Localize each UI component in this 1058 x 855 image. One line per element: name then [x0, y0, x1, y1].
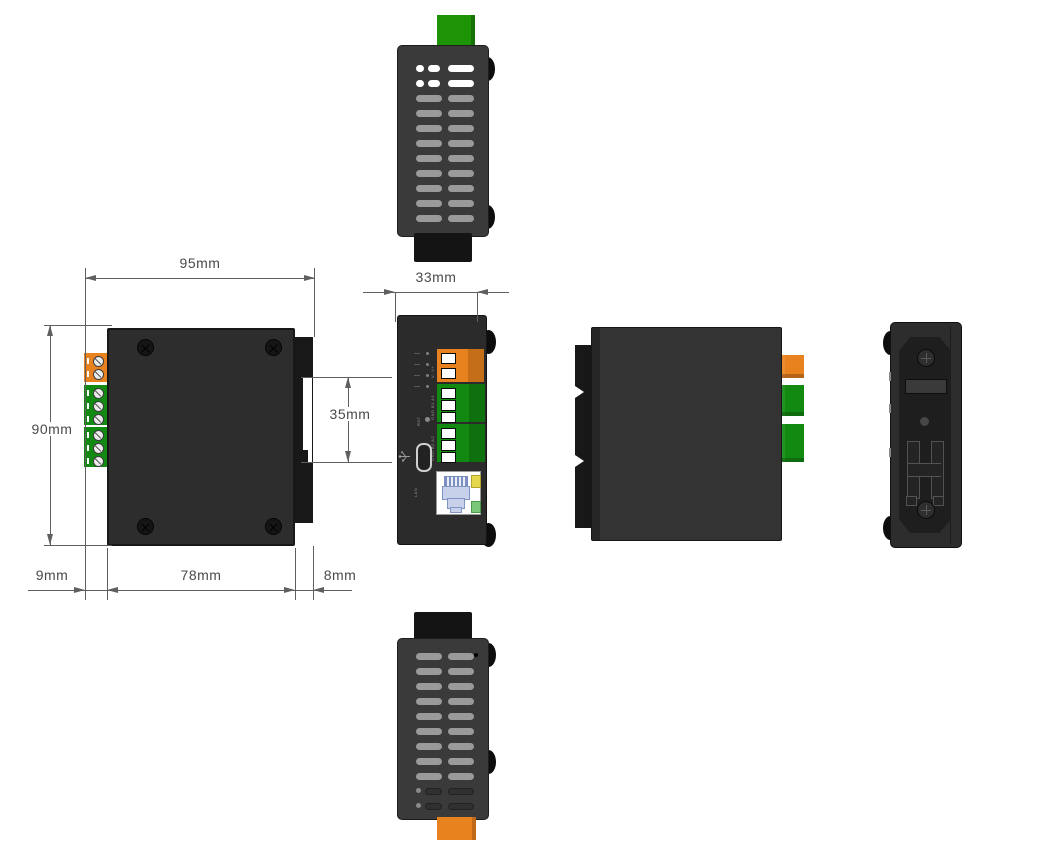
vent-dot	[416, 803, 421, 808]
connector-opening	[441, 388, 456, 399]
vent-slot	[448, 653, 474, 660]
drawing-canvas: V- V+ GND B1 A1 GND B2 A2 RST LAN	[0, 0, 1058, 855]
link-led-yellow	[471, 475, 481, 488]
connector-opening	[441, 452, 456, 463]
vent-slot	[448, 743, 474, 750]
connector-opening	[441, 440, 456, 451]
terminal-wire-slot	[87, 432, 89, 438]
power-connector	[437, 349, 484, 382]
connector-opening	[441, 353, 456, 364]
din-clip-bar	[575, 345, 592, 528]
terminal-cell	[84, 428, 107, 441]
vent-slot	[416, 668, 442, 675]
vent-slot	[448, 155, 474, 162]
terminal-wire-slot	[87, 445, 89, 451]
extension-line	[44, 545, 112, 546]
status-led-label-mark	[414, 364, 420, 365]
mount-slot	[905, 379, 947, 394]
terminal-wire-slot	[87, 403, 89, 409]
status-led-label-mark	[414, 353, 420, 354]
dim-flange-depth: 8mm	[318, 568, 362, 582]
terminal-screw	[93, 456, 104, 467]
power-terminal-label: V- V+	[430, 366, 435, 378]
extension-line	[395, 292, 396, 322]
vent-slot	[416, 215, 442, 222]
vent-slot	[416, 140, 442, 147]
side-serial1-connector	[782, 385, 804, 416]
case-screw	[137, 518, 154, 535]
vent-slot	[416, 728, 442, 735]
link-led-green	[471, 501, 481, 513]
vent-slot	[448, 713, 474, 720]
rj45-port	[436, 471, 481, 515]
terminal-wire-slot	[87, 358, 89, 364]
vent-slot	[448, 80, 474, 87]
vent-slot	[416, 95, 442, 102]
vent-slot	[448, 803, 474, 810]
vent-slot	[416, 155, 442, 162]
terminal-screw	[93, 356, 104, 367]
terminal-wire-slot	[87, 390, 89, 396]
edge-tick	[889, 448, 891, 457]
connector-opening	[441, 368, 456, 379]
terminal-cell	[84, 441, 107, 454]
status-led-label-mark	[414, 375, 420, 376]
dim-rail-slot-height: 35mm	[324, 407, 376, 421]
terminal-wire-slot	[87, 458, 89, 464]
side-serial2-connector	[782, 424, 804, 462]
reset-button	[425, 417, 430, 422]
side-power-connector	[782, 355, 804, 378]
dim-arrow	[345, 377, 351, 388]
dim-arrow	[384, 289, 395, 295]
status-led	[426, 385, 429, 388]
top-view-end-block	[414, 233, 472, 262]
terminal-screw	[93, 401, 104, 412]
dim-arrow	[477, 289, 488, 295]
vent-slot	[448, 758, 474, 765]
dimension-line	[85, 278, 315, 279]
vent-slot	[448, 125, 474, 132]
terminal-cell	[84, 399, 107, 412]
lan-label: LAN	[413, 488, 418, 497]
vent-slot	[416, 773, 442, 780]
terminal-screw	[93, 443, 104, 454]
side-view-body	[591, 327, 782, 541]
mount-screw-bottom	[917, 501, 935, 519]
status-led	[426, 374, 429, 377]
vent-slot	[448, 728, 474, 735]
status-led	[426, 363, 429, 366]
status-led-label-mark	[414, 386, 420, 387]
connector-opening	[441, 412, 456, 423]
terminal-cell	[84, 412, 107, 425]
serial2-terminal-block	[84, 427, 107, 467]
edge-tick	[889, 372, 891, 381]
vent-slot	[416, 110, 442, 117]
vent-slot	[448, 668, 474, 675]
vent-slot	[448, 110, 474, 117]
mount-screw-top	[917, 349, 935, 367]
vent-slot	[416, 743, 442, 750]
terminal-cell	[84, 454, 107, 467]
vent-slot	[416, 80, 424, 87]
vent-slot	[448, 65, 474, 72]
vent-slot	[448, 95, 474, 102]
bottom-orange-connector	[437, 817, 476, 840]
vent-slot	[416, 65, 424, 72]
dim-arrow	[345, 451, 351, 462]
terminal-screw	[93, 430, 104, 441]
vent-slot	[448, 170, 474, 177]
front-view-body	[107, 328, 295, 546]
vent-slot	[448, 200, 474, 207]
vent-slot	[448, 788, 474, 795]
terminal-wire-slot	[87, 371, 89, 377]
dim-overall-width: 95mm	[85, 256, 315, 270]
dim-arrow	[85, 275, 96, 281]
serial2-connector	[437, 424, 485, 462]
serial1-connector	[437, 384, 485, 422]
extension-line	[301, 462, 392, 463]
terminal-cell	[84, 367, 107, 380]
din-clip-foot	[906, 496, 917, 506]
vent-slot	[416, 683, 442, 690]
vent-slot	[416, 653, 442, 660]
vent-dot	[416, 788, 421, 793]
top-view-body	[397, 45, 489, 237]
terminal-screw	[93, 388, 104, 399]
vent-slot	[416, 713, 442, 720]
vent-slot	[448, 683, 474, 690]
vent-slot	[425, 803, 442, 810]
mount-center-dot	[920, 417, 929, 426]
vent-slot	[428, 65, 440, 72]
din-clip-foot	[933, 496, 944, 506]
extension-line	[44, 325, 112, 326]
bottom-view-end-block	[414, 612, 472, 640]
power-terminal-block	[84, 353, 107, 382]
dim-arrow	[47, 325, 53, 336]
dim-arrow	[284, 587, 295, 593]
serial1-terminal-label: GND B1 A1	[430, 395, 435, 420]
din-clip-h-crossbar	[908, 463, 941, 477]
vent-slot	[416, 758, 442, 765]
case-screw	[265, 339, 282, 356]
status-led	[426, 352, 429, 355]
usb-port	[416, 443, 432, 472]
case-screw	[137, 339, 154, 356]
vent-slot	[416, 170, 442, 177]
reset-label: RST	[416, 417, 421, 427]
dim-arrow	[107, 587, 118, 593]
vent-slot	[428, 80, 440, 87]
dim-left-terminal-depth: 9mm	[30, 568, 74, 582]
bottom-view-body	[397, 638, 489, 820]
vent-slot	[416, 698, 442, 705]
terminal-cell	[84, 386, 107, 399]
vent-slot	[448, 185, 474, 192]
dim-face-width: 33mm	[404, 270, 468, 284]
extension-line	[295, 548, 296, 600]
dim-arrow	[313, 587, 324, 593]
side-body-left-strip	[592, 328, 600, 540]
dim-arrow	[304, 275, 315, 281]
dim-arrow	[47, 534, 53, 545]
vent-slot	[448, 773, 474, 780]
vent-slot	[425, 788, 442, 795]
vent-slot	[448, 215, 474, 222]
dim-body-width: 78mm	[169, 568, 233, 582]
terminal-wire-slot	[87, 416, 89, 422]
serial1-terminal-block	[84, 385, 107, 425]
case-screw	[265, 518, 282, 535]
dim-arrow	[74, 587, 85, 593]
extension-line	[477, 292, 478, 322]
connector-opening	[441, 428, 456, 439]
usb-icon	[398, 451, 417, 462]
dim-overall-height: 90mm	[27, 422, 77, 436]
terminal-cell	[84, 354, 107, 367]
edge-tick	[889, 404, 891, 413]
vent-slot	[416, 200, 442, 207]
top-green-connector	[437, 15, 475, 48]
connector-opening	[441, 400, 456, 411]
terminal-screw	[93, 414, 104, 425]
vent-slot	[416, 125, 442, 132]
vent-slot	[448, 140, 474, 147]
terminal-screw	[93, 369, 104, 380]
extension-line	[85, 268, 86, 600]
din-clip-notch	[575, 386, 584, 398]
vent-slot	[416, 185, 442, 192]
vent-slot	[448, 698, 474, 705]
vent-pin	[474, 653, 478, 657]
rj45-latch	[450, 507, 462, 513]
din-clip-notch	[575, 455, 584, 467]
